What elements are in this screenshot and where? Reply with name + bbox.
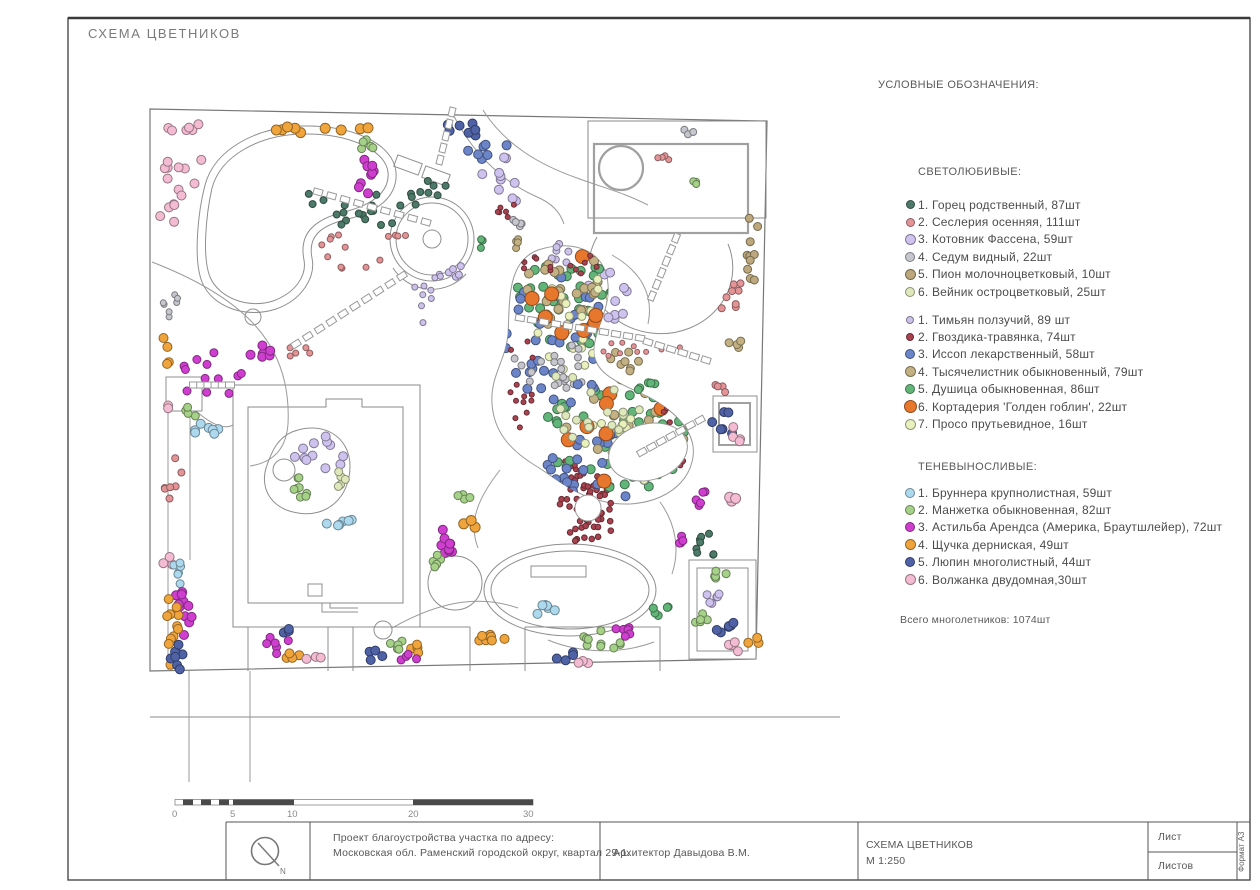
plant-cluster bbox=[513, 236, 522, 252]
legend-item: 6. Волжанка двудомная,30шт bbox=[902, 571, 1222, 588]
site-plan: 0 5 10 20 30 N bbox=[0, 0, 1260, 890]
legend-item-label: 5. Люпин многолистный, 44шт bbox=[918, 555, 1091, 569]
legend-item: 5. Пион молочноцветковый, 10шт bbox=[902, 266, 1111, 283]
plant-cluster bbox=[365, 646, 387, 664]
plant-cluster bbox=[692, 488, 709, 510]
legend-item: 2. Сеслерия осенняя, 111шт bbox=[902, 213, 1111, 230]
legend-item: 1. Тимьян ползучий, 89 шт bbox=[902, 311, 1143, 328]
plant-cluster bbox=[743, 214, 761, 284]
plant-cluster bbox=[417, 178, 449, 199]
legend-item: 1. Бруннера крупнолистная, 59шт bbox=[902, 484, 1222, 501]
legend-item: 6. Кортадерия 'Голден гоблин', 22шт bbox=[902, 398, 1143, 415]
legend-item: 4. Щучка дерниская, 49шт bbox=[902, 536, 1222, 553]
drawing-sheet: 0 5 10 20 30 N СХЕМА ЦВЕТНИКОВ УСЛОВНЫЕ … bbox=[0, 0, 1260, 890]
north-label: N bbox=[280, 867, 286, 876]
legend-header: УСЛОВНЫЕ ОБОЗНАЧЕНИЯ: bbox=[878, 79, 1039, 91]
plant-cluster bbox=[718, 280, 744, 312]
legend-item: 6. Вейник остроцветковый, 25шт bbox=[902, 283, 1111, 300]
plant-cluster bbox=[164, 401, 173, 413]
legend-group-title-sun: СВЕТОЛЮБИВЫЕ: bbox=[918, 166, 1021, 178]
scale-bar: 0 5 10 20 30 bbox=[172, 800, 534, 821]
plant-cluster bbox=[386, 637, 406, 653]
plant-cluster bbox=[634, 379, 659, 394]
plant-color-dot bbox=[905, 384, 915, 394]
legend-total: Всего многолетников: 1074шт bbox=[900, 614, 1051, 626]
plant-cluster bbox=[703, 590, 723, 607]
legend-group-shade-list: 1. Бруннера крупнолистная, 59шт2. Манжет… bbox=[902, 484, 1222, 588]
legend-item: 2. Гвоздика-травянка, 74шт bbox=[902, 328, 1143, 345]
scale-label-0: 0 bbox=[172, 809, 177, 820]
legend-item: 2. Манжетка обыкновенная, 82шт bbox=[902, 501, 1222, 518]
legend-item: 7. Просо прутьевидное, 16шт bbox=[902, 415, 1143, 432]
legend-item: 5. Люпин многолистный, 44шт bbox=[902, 554, 1222, 571]
legend-item-label: 5. Душица обыкновенная, 86шт bbox=[918, 382, 1100, 396]
plant-cluster bbox=[156, 185, 186, 226]
legend-item-label: 3. Котовник Фассена, 59шт bbox=[918, 232, 1073, 246]
plant-cluster bbox=[729, 423, 745, 446]
legend-item-label: 6. Кортадерия 'Голден гоблин', 22шт bbox=[918, 400, 1127, 414]
plant-color-dot bbox=[905, 419, 916, 430]
plant-cluster bbox=[385, 232, 408, 239]
plant-cluster bbox=[693, 530, 717, 558]
project-address-line2: Московская обл. Раменский городской окру… bbox=[333, 846, 630, 861]
plant-cluster bbox=[170, 559, 185, 588]
legend-item: 1. Горец родственный, 87шт bbox=[902, 196, 1111, 213]
legend-group-sun-list: 1. Горец родственный, 87шт2. Сеслерия ос… bbox=[902, 196, 1111, 300]
legend-item: 3. Астильба Арендса (Америка, Браутшлейе… bbox=[902, 519, 1222, 536]
legend-item-label: 6. Вейник остроцветковый, 25шт bbox=[918, 285, 1106, 299]
page-title: СХЕМА ЦВЕТНИКОВ bbox=[88, 26, 241, 41]
plant-cluster bbox=[612, 624, 634, 641]
scale-label-30: 30 bbox=[523, 809, 534, 820]
north-compass: N bbox=[252, 838, 287, 877]
plant-cluster bbox=[533, 601, 559, 619]
sheets-label: Листов bbox=[1158, 859, 1193, 874]
legend-group-title-shade: ТЕНЕВЫНОСЛИВЫЕ: bbox=[918, 461, 1037, 473]
plant-cluster bbox=[676, 532, 687, 547]
plant-color-dot bbox=[905, 505, 915, 515]
legend-item-label: 1. Горец родственный, 87шт bbox=[918, 198, 1081, 212]
plant-cluster bbox=[712, 618, 738, 637]
plant-color-dot bbox=[905, 522, 915, 532]
plant-cluster bbox=[690, 178, 700, 188]
plant-color-dot bbox=[905, 234, 916, 245]
plan-linework bbox=[150, 109, 840, 782]
plant-cluster bbox=[724, 638, 742, 656]
plant-color-dot bbox=[906, 316, 914, 324]
plant-cluster bbox=[725, 492, 741, 506]
plant-color-dot bbox=[905, 574, 916, 585]
legend-item: 5. Душица обыкновенная, 86шт bbox=[902, 381, 1143, 398]
plant-cluster bbox=[191, 419, 223, 438]
plant-cluster bbox=[712, 382, 729, 396]
plant-color-dot bbox=[904, 400, 917, 413]
plant-cluster bbox=[725, 337, 745, 351]
plant-cluster bbox=[475, 630, 509, 645]
legend-item-label: 6. Волжанка двудомная,30шт bbox=[918, 573, 1087, 587]
plant-cluster bbox=[454, 491, 474, 504]
plant-cluster bbox=[319, 232, 383, 271]
plant-color-dot bbox=[906, 333, 914, 341]
plant-color-dot bbox=[905, 366, 916, 377]
scale-label-10: 10 bbox=[287, 809, 298, 820]
scheme-scale: М 1:250 bbox=[866, 854, 905, 869]
plant-cluster bbox=[510, 216, 525, 229]
scheme-name: СХЕМА ЦВЕТНИКОВ bbox=[866, 838, 973, 853]
plant-cluster bbox=[681, 126, 697, 138]
plant-cluster bbox=[279, 625, 293, 638]
sheet-label: Лист bbox=[1158, 830, 1182, 845]
plant-cluster bbox=[477, 236, 486, 252]
plant-cluster bbox=[649, 603, 672, 620]
legend-item: 4. Тысячелистник обыкновенный, 79шт bbox=[902, 363, 1143, 380]
plant-cluster bbox=[302, 652, 325, 663]
plant-color-dot bbox=[905, 488, 915, 498]
legend-item-label: 4. Тысячелистник обыкновенный, 79шт bbox=[918, 365, 1143, 379]
legend-item-label: 4. Седум видный, 22шт bbox=[918, 250, 1052, 264]
legend-item: 3. Котовник Фассена, 59шт bbox=[902, 231, 1111, 248]
plant-dots-layer bbox=[156, 119, 763, 674]
legend-item-label: 3. Иссоп лекарственный, 58шт bbox=[918, 347, 1095, 361]
plant-cluster bbox=[159, 334, 173, 369]
plant-color-dot bbox=[906, 200, 915, 209]
plant-color-dot bbox=[906, 218, 915, 227]
plant-cluster bbox=[180, 349, 245, 398]
plant-cluster bbox=[692, 610, 712, 626]
plant-color-dot bbox=[905, 252, 915, 262]
plant-cluster bbox=[358, 136, 377, 153]
legend-item: 4. Седум видный, 22шт bbox=[902, 248, 1111, 265]
plant-cluster bbox=[711, 567, 731, 582]
plant-cluster bbox=[744, 633, 763, 647]
format-label: Формат А3 bbox=[1237, 825, 1250, 879]
legend-item-label: 1. Тимьян ползучий, 89 шт bbox=[918, 313, 1070, 327]
plant-color-dot bbox=[905, 287, 915, 297]
legend-group-sun2-list: 1. Тимьян ползучий, 89 шт2. Гвоздика-тра… bbox=[902, 311, 1143, 433]
plant-cluster bbox=[412, 271, 444, 325]
plant-color-dot bbox=[905, 349, 915, 359]
plant-color-dot bbox=[905, 269, 916, 280]
plant-color-dot bbox=[905, 557, 915, 567]
legend-item-label: 4. Щучка дерниская, 49шт bbox=[918, 538, 1069, 552]
plant-cluster bbox=[287, 345, 313, 359]
scale-label-20: 20 bbox=[408, 809, 419, 820]
legend-item-label: 2. Манжетка обыкновенная, 82шт bbox=[918, 503, 1111, 517]
legend-item-label: 5. Пион молочноцветковый, 10шт bbox=[918, 267, 1111, 281]
plant-color-dot bbox=[905, 539, 916, 550]
legend-item-label: 1. Бруннера крупнолистная, 59шт bbox=[918, 486, 1112, 500]
plant-cluster bbox=[655, 153, 672, 163]
plant-cluster bbox=[574, 657, 593, 668]
plant-cluster bbox=[459, 516, 480, 533]
legend-item-label: 3. Астильба Арендса (Америка, Браутшлейе… bbox=[918, 520, 1222, 534]
architect-name: Архитектор Давыдова В.М. bbox=[613, 846, 750, 861]
plant-cluster bbox=[160, 292, 180, 320]
legend-item: 3. Иссоп лекарственный, 58шт bbox=[902, 346, 1143, 363]
plant-cluster bbox=[282, 649, 304, 663]
plant-cluster bbox=[246, 341, 275, 361]
legend-item-label: 7. Просо прутьевидное, 16шт bbox=[918, 417, 1088, 431]
project-address-line1: Проект благоустройства участка по адресу… bbox=[333, 831, 554, 846]
legend-item-label: 2. Гвоздика-травянка, 74шт bbox=[918, 330, 1076, 344]
plant-cluster bbox=[161, 455, 185, 502]
scale-label-5: 5 bbox=[230, 809, 235, 820]
legend-item-label: 2. Сеслерия осенняя, 111шт bbox=[918, 215, 1080, 229]
plant-cluster bbox=[160, 120, 206, 188]
